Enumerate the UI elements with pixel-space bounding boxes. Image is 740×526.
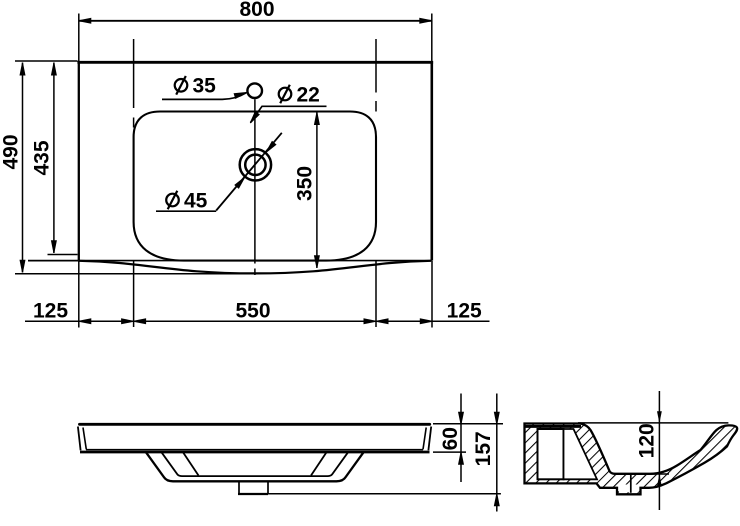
svg-text:350: 350 xyxy=(294,166,317,201)
svg-text:120: 120 xyxy=(636,423,659,458)
svg-text:60: 60 xyxy=(439,427,462,450)
svg-text:435: 435 xyxy=(31,140,54,175)
svg-text:35: 35 xyxy=(193,75,217,98)
svg-text:550: 550 xyxy=(235,299,270,322)
svg-text:157: 157 xyxy=(472,431,495,466)
svg-text:45: 45 xyxy=(184,190,208,213)
svg-text:22: 22 xyxy=(297,84,320,107)
svg-text:800: 800 xyxy=(239,0,274,21)
svg-text:490: 490 xyxy=(0,134,23,169)
svg-text:125: 125 xyxy=(447,299,482,322)
svg-text:125: 125 xyxy=(33,299,68,322)
